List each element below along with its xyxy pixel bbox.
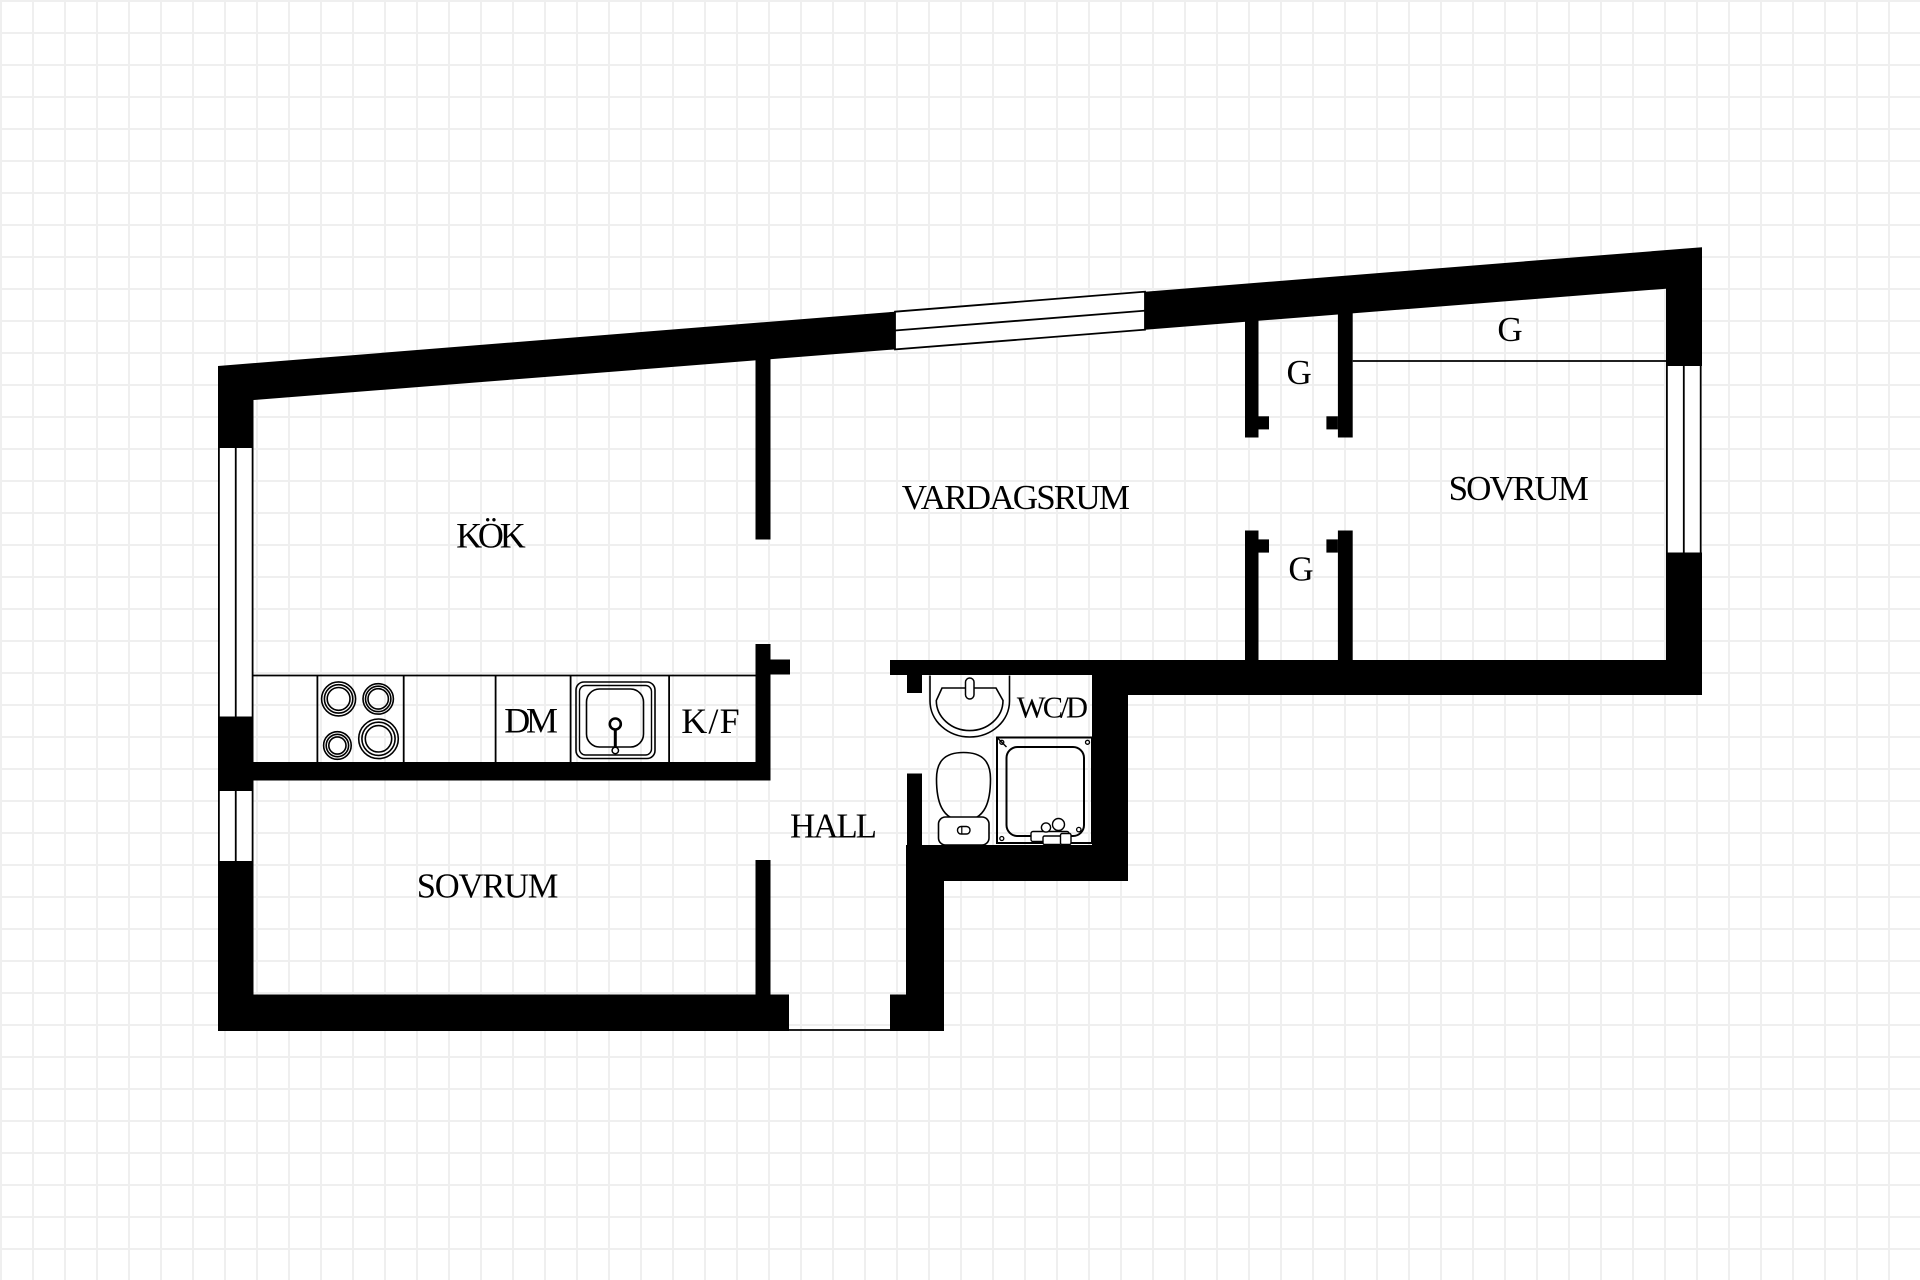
svg-text:K/F: K/F <box>681 701 741 741</box>
svg-text:G: G <box>1497 310 1522 349</box>
svg-text:KÖK: KÖK <box>456 516 526 556</box>
svg-text:SOVRUM: SOVRUM <box>1449 469 1589 508</box>
svg-text:WC/D: WC/D <box>1017 691 1087 725</box>
svg-text:SOVRUM: SOVRUM <box>417 868 558 906</box>
svg-text:DM: DM <box>504 701 557 741</box>
svg-text:G: G <box>1287 353 1312 392</box>
svg-text:G: G <box>1288 550 1313 589</box>
svg-text:VARDAGSRUM: VARDAGSRUM <box>902 478 1130 517</box>
svg-text:HALL: HALL <box>790 807 876 846</box>
